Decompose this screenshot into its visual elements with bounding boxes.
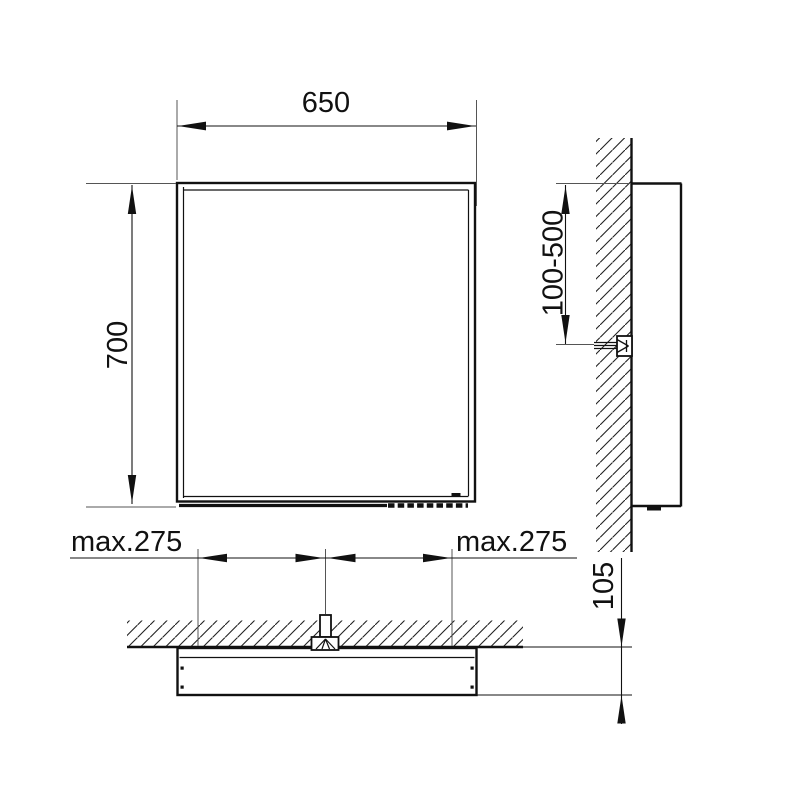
cabinet-outline-plan [178,648,477,695]
mirror-front-view [177,183,475,506]
dimension-label-front-height: 700 [102,321,134,369]
height-dimension-700: 700 [86,184,176,508]
dimension-label-front-width: 650 [302,87,350,119]
technical-drawing-page: 650 700 [0,0,800,800]
cabinet-plan-view [127,549,632,695]
dimension-label-offset-right: max.275 [456,526,567,558]
mirror-profile-side [631,184,682,507]
depth-dimension-105: 105 [588,558,626,724]
dimension-label-mounting-range: 100-500 [538,210,570,316]
mirror-side-view [594,138,682,552]
mirror-installation-drawing: 650 700 [0,0,800,800]
wall-anchor-side [617,336,632,356]
sensor-switch-mark [452,493,461,496]
mounting-screw-plan [320,615,331,637]
dimension-label-offset-left: max.275 [71,526,182,558]
mirror-outline-front [177,183,475,502]
dimension-label-depth: 105 [588,562,620,610]
profile-bottom-strip [647,507,661,511]
